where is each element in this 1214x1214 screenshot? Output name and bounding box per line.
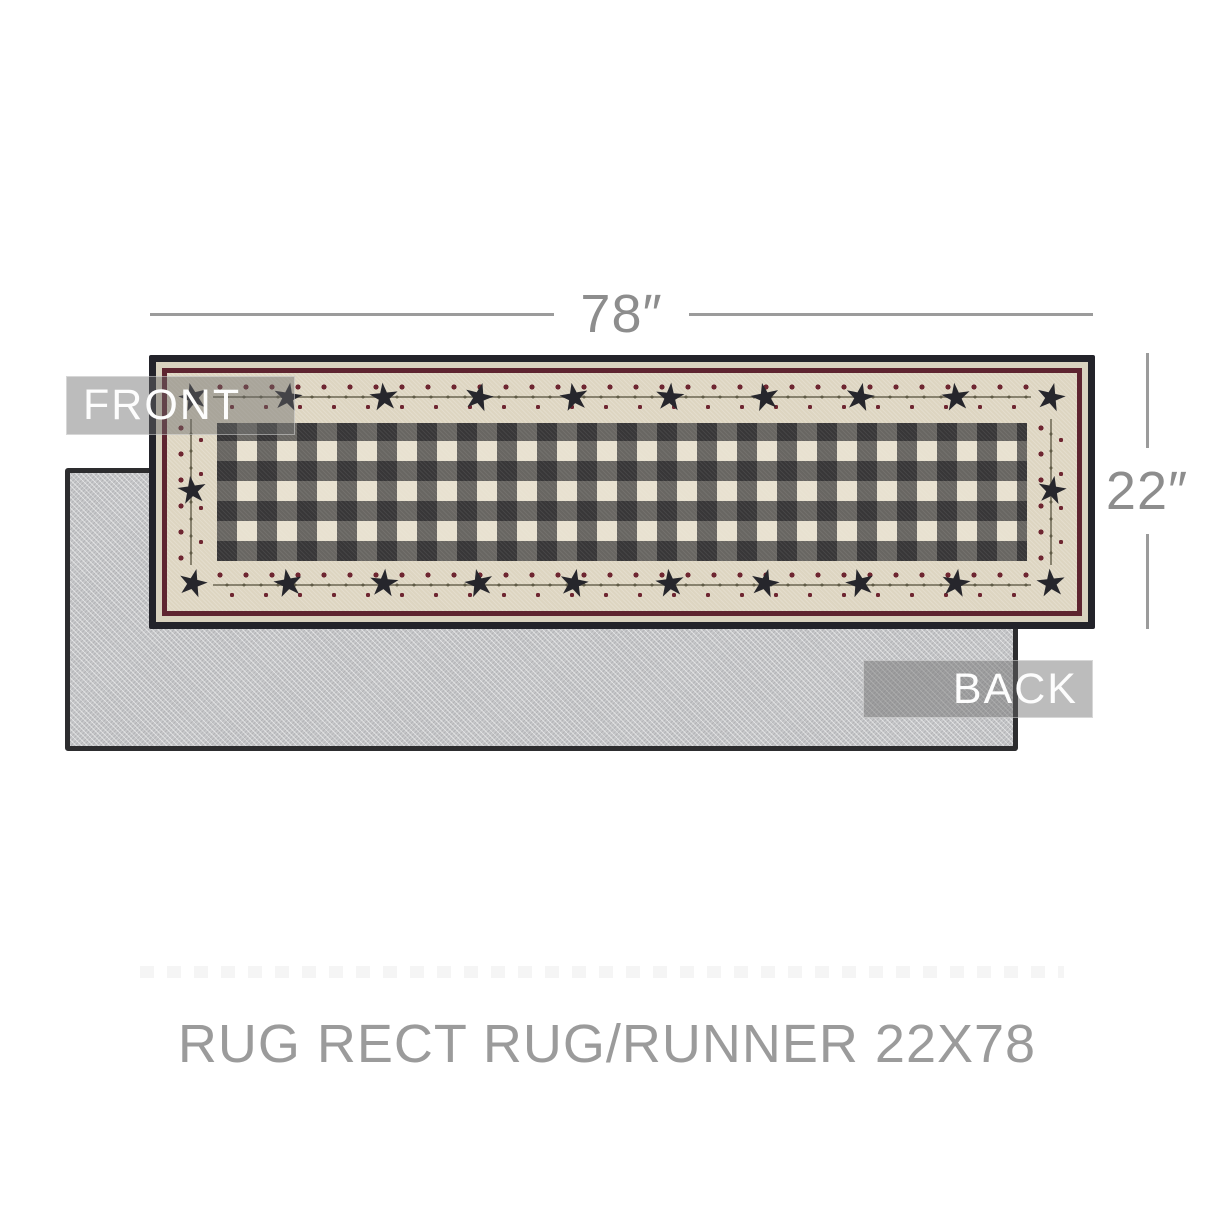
star-icon: ★ <box>652 377 688 417</box>
width-dimension-line-right <box>689 313 1093 316</box>
width-dimension-line-left <box>150 313 554 316</box>
front-tag-label: FRONT <box>83 384 241 427</box>
height-dimension-line-bottom <box>1146 534 1149 629</box>
buffalo-check-field <box>217 423 1027 561</box>
star-icon: ★ <box>555 376 594 418</box>
star-icon: ★ <box>173 469 211 510</box>
star-icon: ★ <box>365 377 402 417</box>
product-caption: RUG RECT RUG/RUNNER 22X78 <box>0 1012 1214 1077</box>
front-tag: FRONT <box>66 376 295 435</box>
height-dimension-line-top <box>1146 353 1149 448</box>
star-icon: ★ <box>937 377 974 418</box>
product-dimension-diagram: 78″ 22″ ★★★★★★★★★★★★★★★★★★★★★★ FRONT <box>0 0 1214 1214</box>
vine-berry-border-top <box>213 380 1031 416</box>
star-icon: ★ <box>1032 469 1071 511</box>
width-dimension-label: 78″ <box>580 287 662 341</box>
vine-berry-border-bottom <box>213 568 1031 604</box>
front-rug-cream-edge: ★★★★★★★★★★★★★★★★★★★★★★ <box>156 362 1088 622</box>
back-tag-label: BACK <box>953 668 1078 711</box>
height-dimension: 22″ <box>1114 353 1180 629</box>
star-icon: ★ <box>172 561 213 605</box>
front-rug-border-band: ★★★★★★★★★★★★★★★★★★★★★★ <box>167 373 1077 611</box>
star-icon: ★ <box>651 563 688 604</box>
star-icon: ★ <box>936 562 975 604</box>
front-rug-maroon-stripe: ★★★★★★★★★★★★★★★★★★★★★★ <box>162 368 1082 616</box>
star-icon: ★ <box>1033 563 1070 603</box>
star-icon: ★ <box>269 562 308 604</box>
star-icon: ★ <box>1031 375 1072 419</box>
height-dimension-label: 22″ <box>1106 464 1188 518</box>
width-dimension: 78″ <box>150 286 1093 342</box>
back-tag: BACK <box>863 660 1093 718</box>
star-icon: ★ <box>366 563 402 603</box>
ghost-strip <box>140 966 1064 978</box>
